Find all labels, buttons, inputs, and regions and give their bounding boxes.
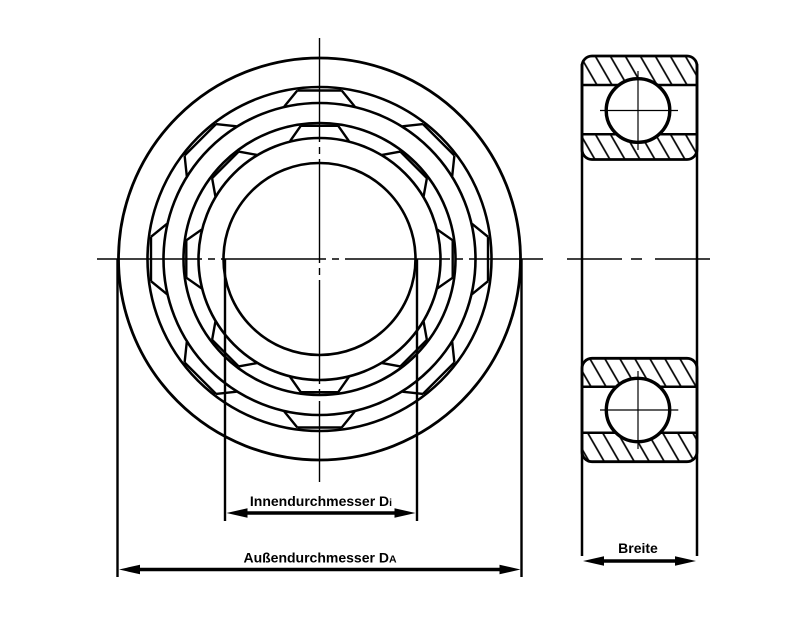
outer-diameter-label: Außendurchmesser DA (243, 550, 396, 566)
inner-diameter-dimension: Innendurchmesser Di (227, 493, 416, 518)
technical-drawing-canvas: Innendurchmesser Di Außendurchmesser DA … (0, 0, 800, 627)
width-dimension: Breite (583, 540, 696, 566)
arrowhead-right (500, 565, 521, 575)
arrowhead-right (675, 556, 696, 566)
arrowhead-left (119, 565, 140, 575)
inner-diameter-label: Innendurchmesser Di (250, 493, 392, 509)
arrowhead-right (395, 508, 416, 518)
front-view (97, 38, 543, 482)
width-label: Breite (618, 540, 658, 556)
arrowhead-left (583, 556, 604, 566)
ball-bearing-drawing: Innendurchmesser Di Außendurchmesser DA … (0, 0, 800, 627)
outer-diameter-dimension: Außendurchmesser DA (119, 550, 521, 575)
section-view (567, 56, 710, 556)
arrowhead-left (227, 508, 248, 518)
